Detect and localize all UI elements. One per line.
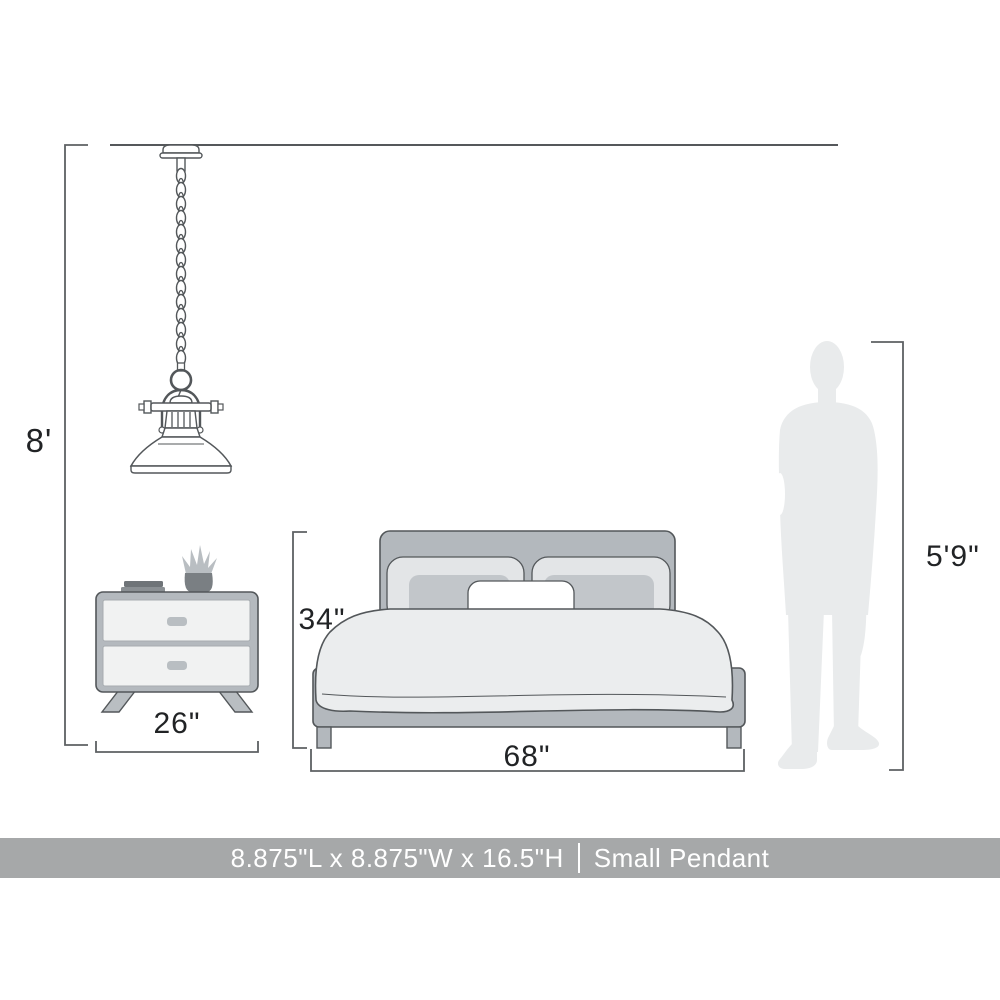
ceiling-height-label: 8' <box>26 422 53 459</box>
pendant-canopy-icon <box>160 145 202 171</box>
banner-divider <box>578 843 580 873</box>
pendant-light-illustration <box>131 145 231 473</box>
bed-height-label: 34" <box>298 603 345 636</box>
bed-width-label: 68" <box>503 740 550 773</box>
drawer-handle-top <box>167 617 187 626</box>
nightstand-left-leg <box>102 690 136 712</box>
pendant-chain-icon <box>177 169 186 372</box>
bed-height-bracket <box>293 532 307 748</box>
bed-right-leg <box>727 727 741 748</box>
person-height-bracket <box>871 342 903 770</box>
bed-left-leg <box>317 727 331 748</box>
person-silhouette-icon <box>775 341 879 769</box>
nightstand-width-bracket <box>96 741 258 752</box>
bed-illustration <box>313 531 745 748</box>
drawer-handle-bottom <box>167 661 187 670</box>
pendant-shade-icon <box>131 437 231 473</box>
nightstand-plant-icon <box>182 545 217 592</box>
nightstand-width-label: 26" <box>153 707 200 740</box>
person-height-label: 5'9" <box>926 540 980 573</box>
product-name-text: Small Pendant <box>594 843 770 874</box>
dimension-diagram: 8' <box>0 0 1000 1000</box>
diagram-artwork: 8' <box>0 0 1000 838</box>
pendant-fixture-icon <box>139 370 223 437</box>
ceiling-height-bracket <box>65 145 88 745</box>
product-dimensions-text: 8.875"L x 8.875"W x 16.5"H <box>231 843 564 874</box>
product-info-banner: 8.875"L x 8.875"W x 16.5"H Small Pendant <box>0 838 1000 878</box>
nightstand-illustration <box>96 545 258 712</box>
nightstand-right-leg <box>218 690 252 712</box>
